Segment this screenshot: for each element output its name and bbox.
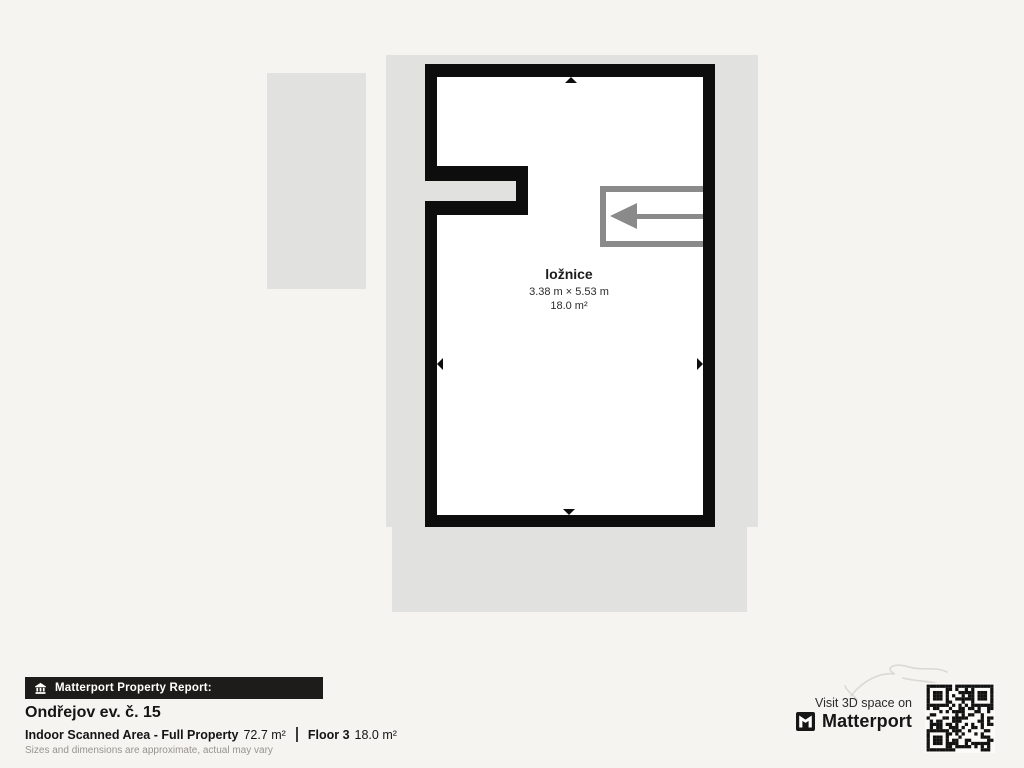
brand-name: Matterport — [822, 711, 912, 732]
scanned-area-label: Indoor Scanned Area - Full Property — [25, 728, 238, 742]
banner-label: Matterport Property Report: — [55, 682, 212, 694]
report-banner: Matterport Property Report: — [25, 677, 323, 699]
left-arrow-head-icon — [610, 203, 637, 229]
lower-area-backdrop — [392, 527, 747, 612]
dimension-marker-bottom-icon — [563, 509, 575, 515]
visit-3d-space-text: Visit 3D space on — [760, 696, 912, 710]
matterport-floor-plan-page: ložnice 3.38 m × 5.53 m 18.0 m² Matterpo… — [0, 0, 1024, 768]
scan-info-row: Indoor Scanned Area - Full Property 72.7… — [25, 727, 397, 742]
property-title: Ondřejov ev. č. 15 — [25, 704, 161, 722]
left-arrow-icon — [637, 214, 703, 219]
matterport-logo-icon — [795, 711, 816, 732]
room-dimensions: 3.38 m × 5.53 m — [469, 286, 669, 298]
adjacent-area-block — [267, 73, 366, 289]
room-label: ložnice 3.38 m × 5.53 m 18.0 m² — [469, 266, 669, 312]
doorway-opening — [425, 181, 516, 201]
floor-label: Floor 3 — [308, 728, 350, 742]
scanned-area-value: 72.7 m² — [243, 728, 285, 742]
dimension-marker-left-icon — [437, 358, 443, 370]
info-divider — [296, 727, 298, 742]
qr-code — [925, 683, 995, 753]
wall-segment-lower — [425, 201, 528, 215]
wall-segment-upper — [425, 166, 528, 181]
dimension-marker-right-icon — [697, 358, 703, 370]
wall-segment-connector — [516, 166, 528, 215]
dimension-marker-top-icon — [565, 77, 577, 83]
disclaimer-text: Sizes and dimensions are approximate, ac… — [25, 745, 273, 756]
room-area: 18.0 m² — [469, 300, 669, 312]
floor-value: 18.0 m² — [355, 728, 397, 742]
matterport-logo: Matterport — [760, 711, 912, 732]
room-name: ložnice — [469, 266, 669, 282]
building-icon — [34, 682, 47, 695]
